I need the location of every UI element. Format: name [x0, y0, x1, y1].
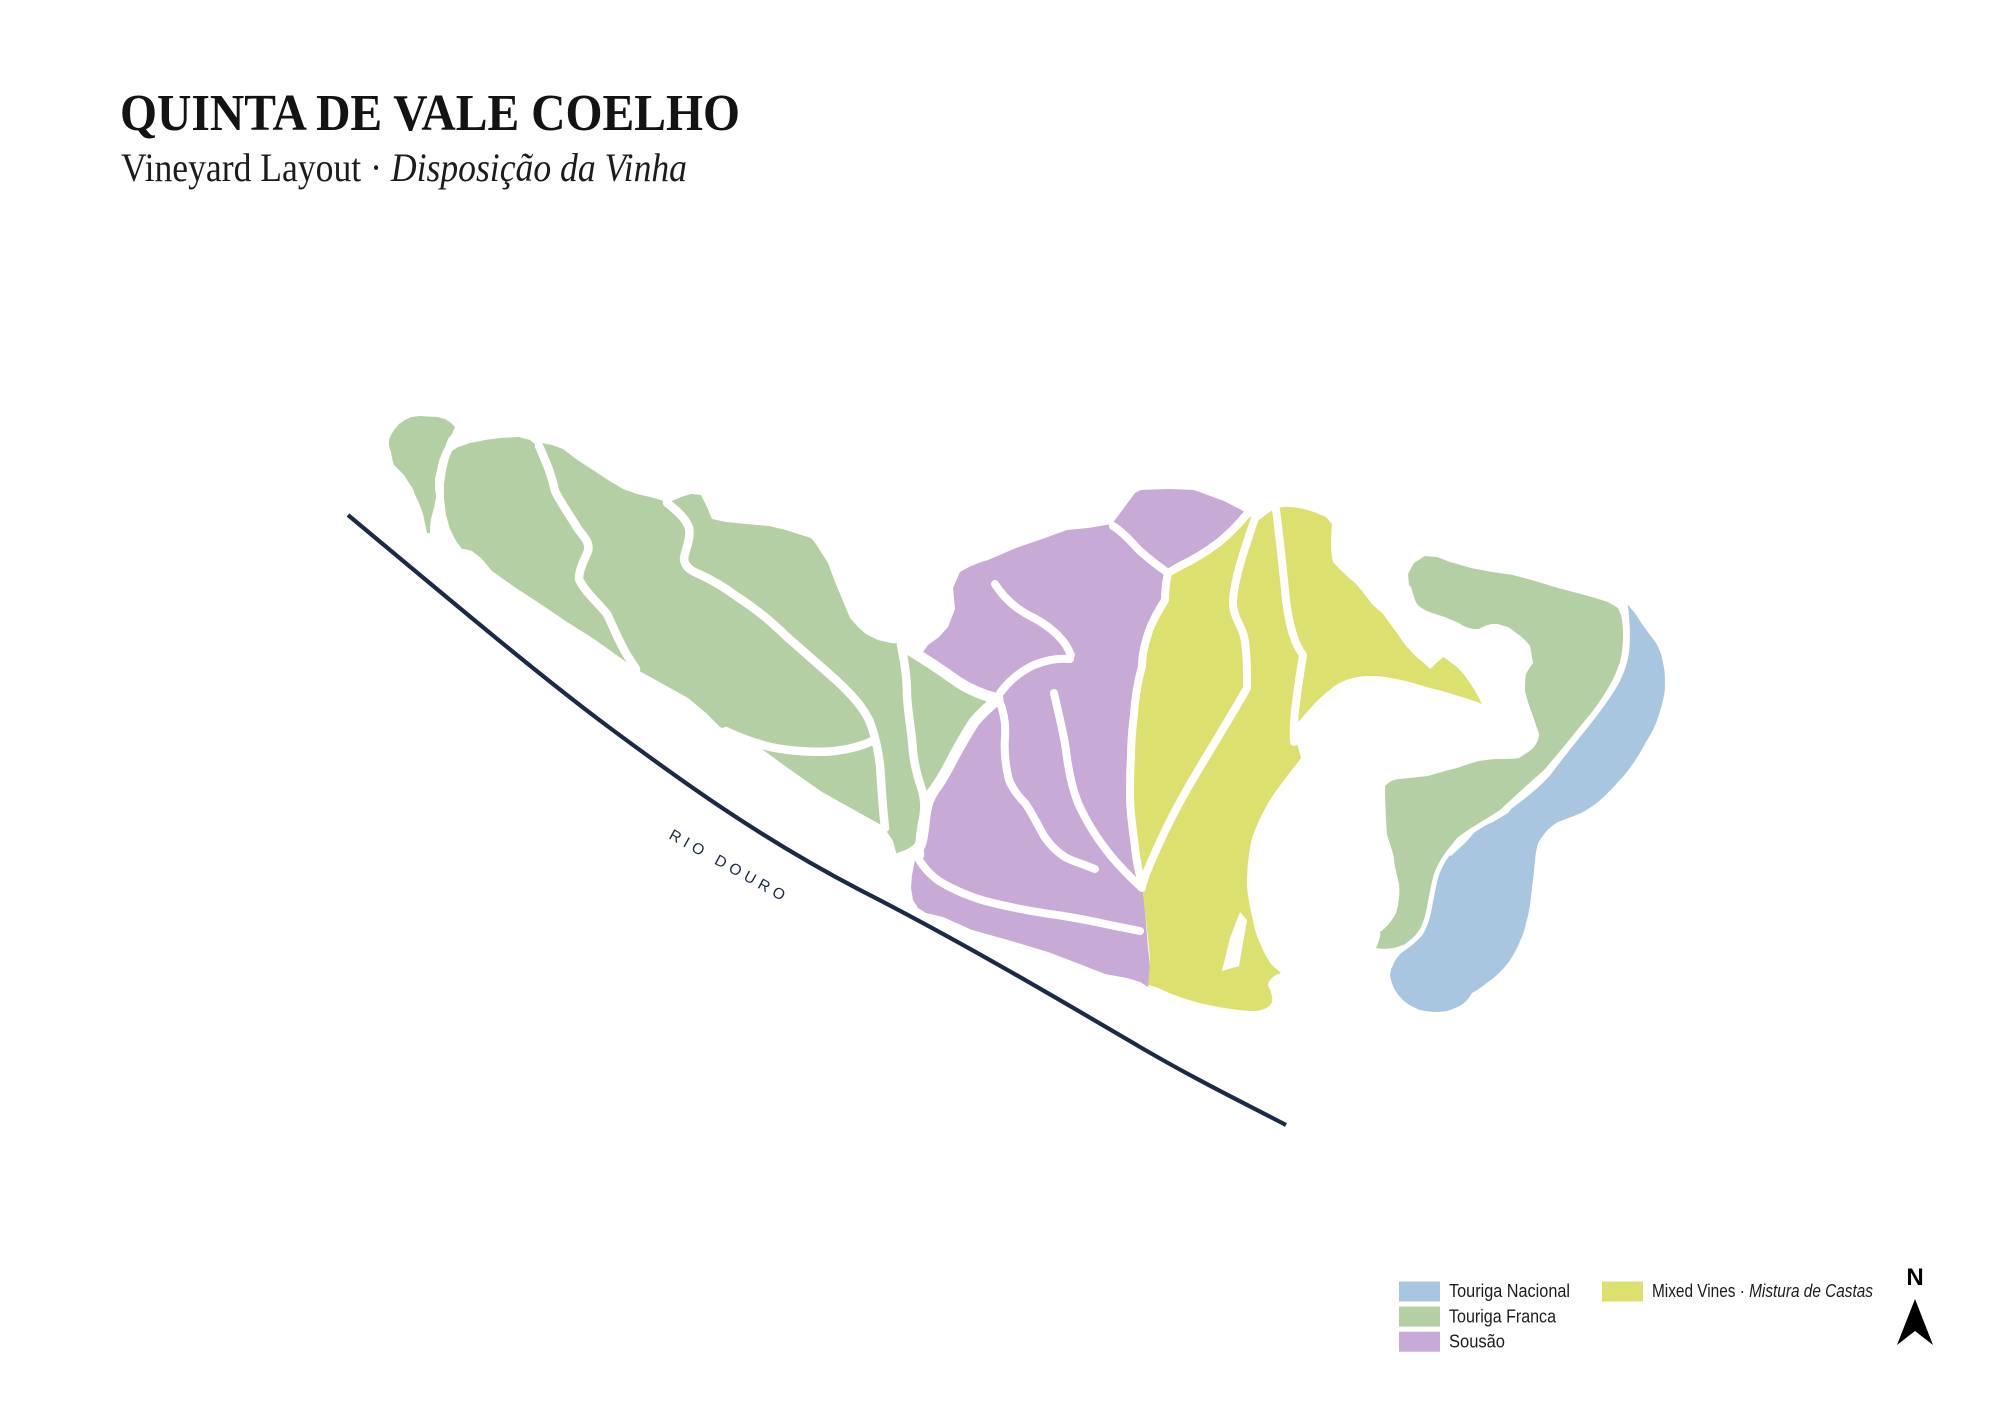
svg-text:N: N — [1906, 1264, 1923, 1291]
svg-text:Touriga Franca: Touriga Franca — [1449, 1307, 1557, 1327]
svg-text:Mixed Vines · Mistura de Casta: Mixed Vines · Mistura de Castas — [1652, 1281, 1873, 1301]
svg-text:Touriga Nacional: Touriga Nacional — [1449, 1281, 1570, 1301]
svg-text:Vineyard Layout · Disposição d: Vineyard Layout · Disposição da Vinha — [121, 145, 687, 190]
svg-text:Sousão: Sousão — [1449, 1332, 1505, 1352]
svg-text:QUINTA DE VALE COELHO: QUINTA DE VALE COELHO — [120, 85, 740, 142]
